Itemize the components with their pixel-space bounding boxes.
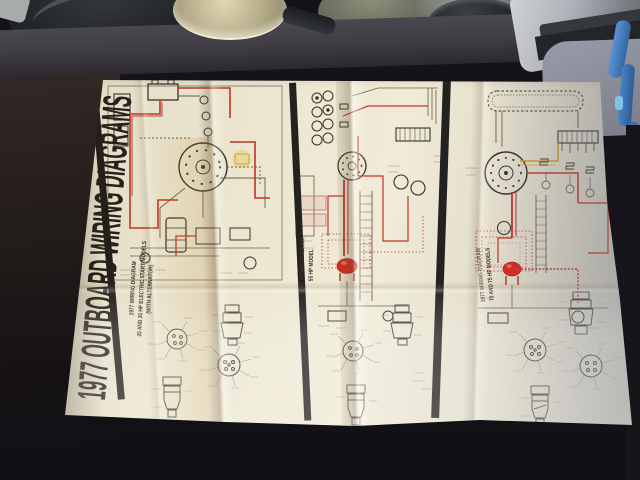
wiring-poster-sheet: 1977 WIRING DIAGRAM 25 AND 35 HP ELECTRI…	[60, 68, 638, 460]
highlight-bottom	[60, 68, 638, 460]
photo-scene: 1977 WIRING DIAGRAM 25 AND 35 HP ELECTRI…	[0, 0, 640, 480]
blue-pen-tip	[615, 96, 623, 110]
table-surface-right	[626, 125, 640, 480]
